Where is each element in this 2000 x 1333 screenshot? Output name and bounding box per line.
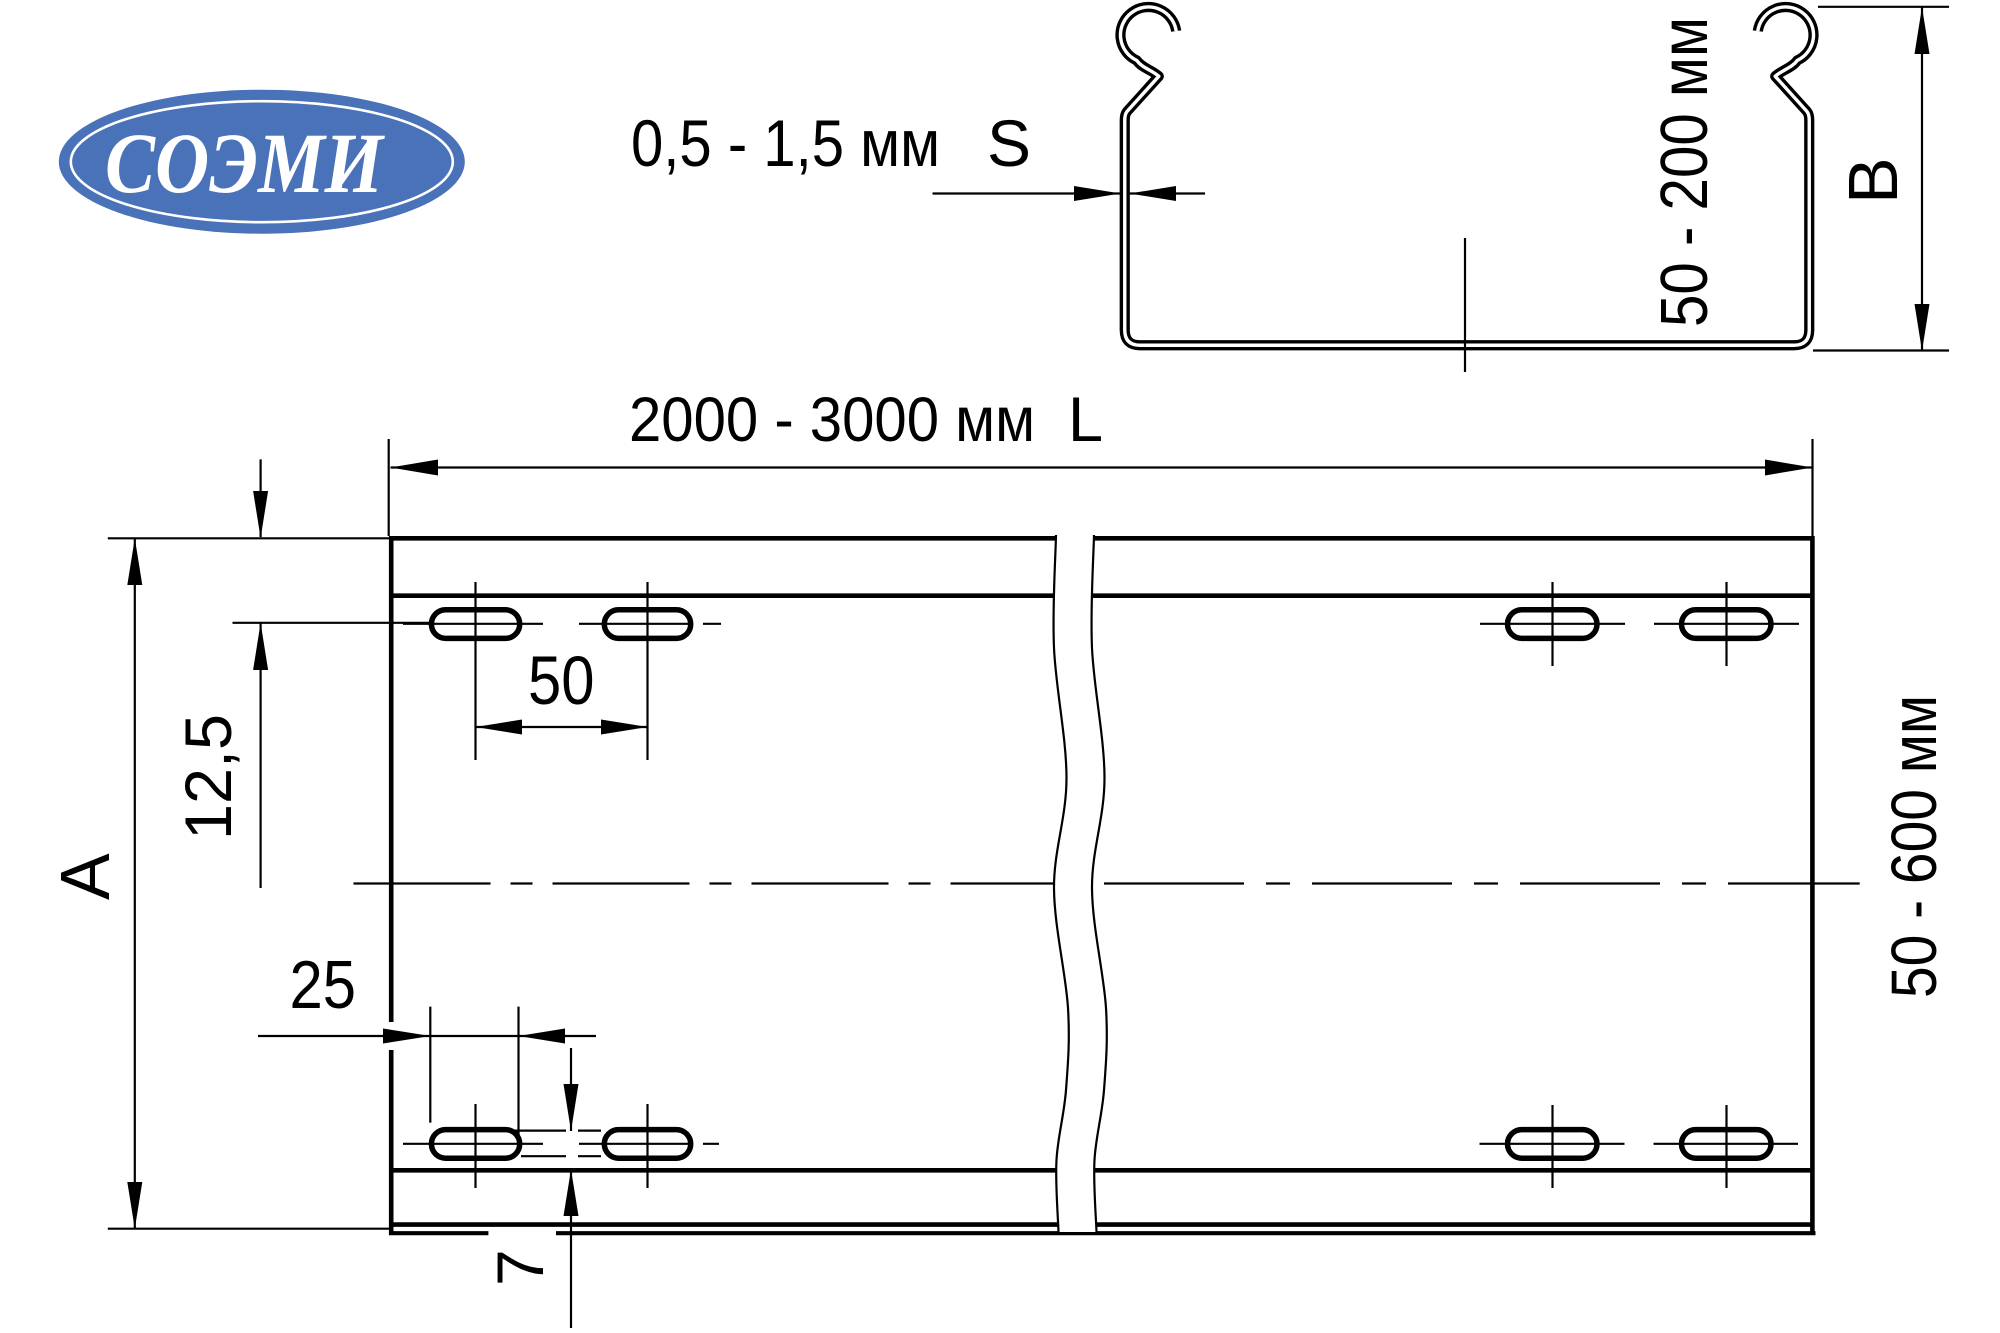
svg-text:0,5 - 1,5 мм: 0,5 - 1,5 мм bbox=[631, 106, 940, 180]
svg-text:25: 25 bbox=[290, 947, 357, 1023]
svg-text:L: L bbox=[1068, 385, 1103, 455]
svg-text:2000 - 3000 мм: 2000 - 3000 мм bbox=[629, 385, 1035, 455]
svg-text:50: 50 bbox=[528, 642, 595, 719]
svg-text:50 - 200 мм: 50 - 200 мм bbox=[1647, 17, 1722, 327]
svg-text:S: S bbox=[987, 106, 1031, 180]
svg-text:12,5: 12,5 bbox=[171, 714, 245, 840]
svg-text:50 - 600 мм: 50 - 600 мм bbox=[1878, 695, 1950, 998]
svg-text:7: 7 bbox=[483, 1249, 557, 1286]
svg-text:СОЭМИ: СОЭМИ bbox=[105, 115, 386, 211]
svg-text:B: B bbox=[1834, 157, 1912, 204]
svg-text:A: A bbox=[46, 853, 124, 900]
